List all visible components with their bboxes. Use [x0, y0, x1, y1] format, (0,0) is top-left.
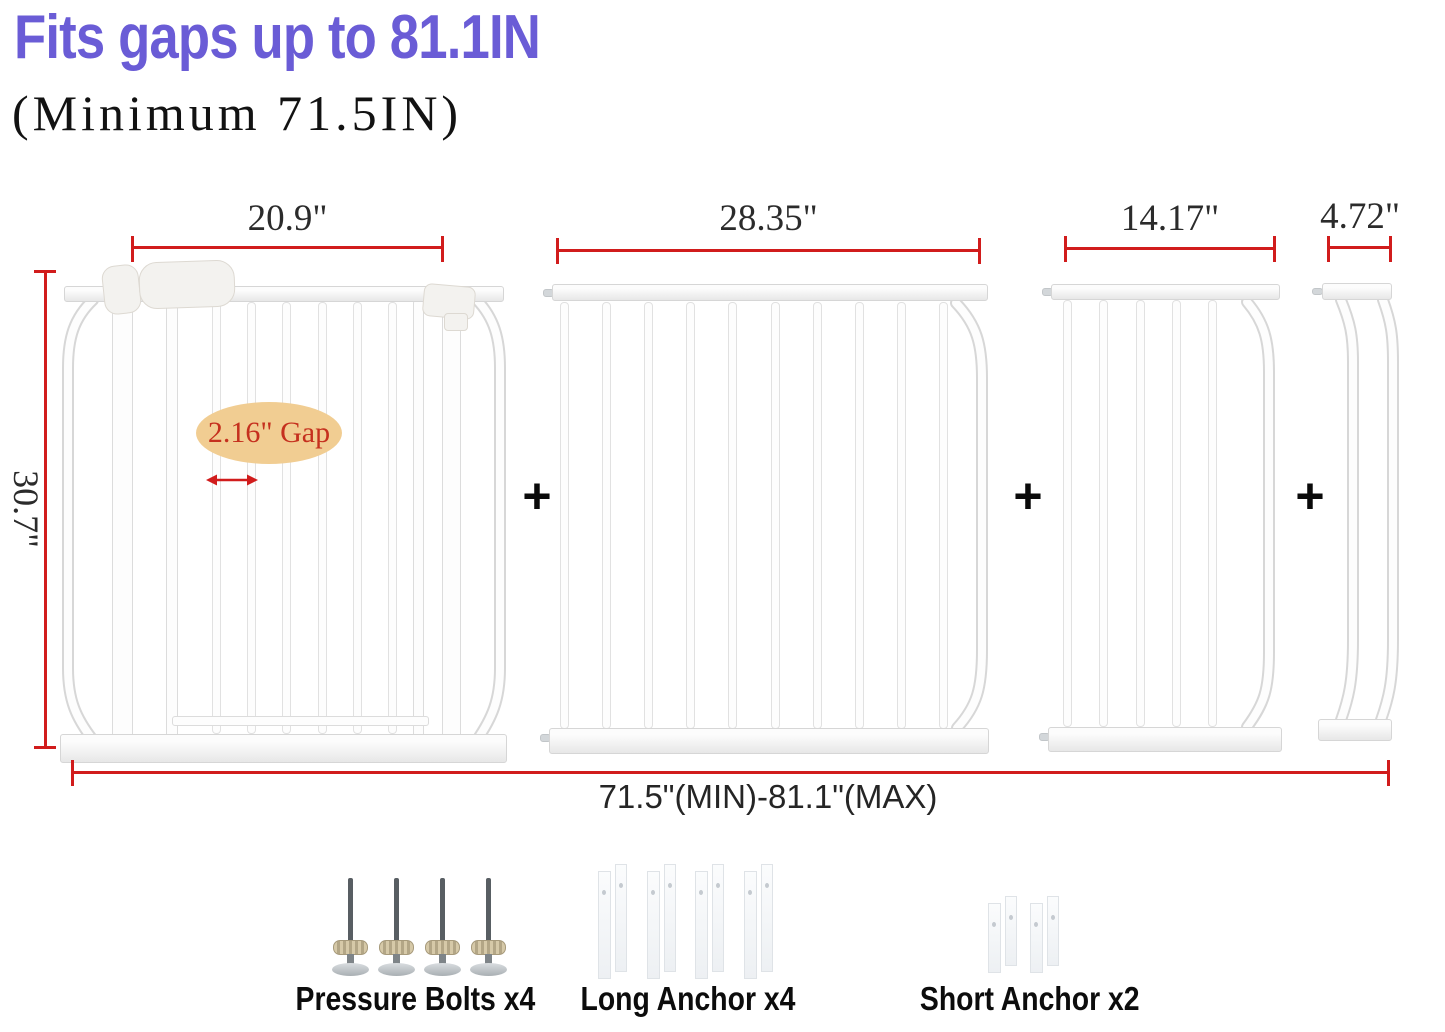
extension-28-top-rail: [552, 284, 988, 301]
gap-arrow-icon: [206, 470, 258, 490]
gate-bar: [282, 302, 291, 734]
plus-icon: +: [509, 468, 565, 524]
bolt-rod: [440, 878, 445, 944]
dim-tick: [1064, 236, 1067, 262]
dim-tick: [1389, 236, 1392, 262]
extension-14-top-rail: [1051, 284, 1280, 300]
gate-bar: [602, 302, 611, 729]
pressure-bolt-icon: [331, 878, 371, 978]
gate-door-left-post: [166, 300, 178, 746]
gate-bottom-rail: [60, 734, 507, 763]
pressure-bolt-icon: [469, 878, 509, 978]
dim-line-ext4-width: [1328, 246, 1391, 249]
gate-bar: [388, 302, 397, 734]
long-anchor-icon: [744, 864, 774, 980]
short-anchor-icon: [988, 896, 1018, 976]
long-anchor-icon: [598, 864, 628, 980]
short-anchors-label-text: Short Anchor x2: [920, 980, 1140, 1018]
page-title: Fits gaps up to 81.1IN: [14, 2, 540, 73]
dim-tick: [34, 746, 56, 749]
extension-4-top-plate: [1322, 283, 1392, 300]
bolt-rod: [348, 878, 353, 944]
dim-line-ext14-width: [1065, 247, 1275, 250]
dim-tick: [1327, 236, 1330, 262]
gate-bar: [771, 302, 780, 729]
dim-tick: [131, 236, 134, 262]
dim-tick: [34, 270, 56, 273]
extension-14-bars: [1063, 300, 1217, 727]
dim-tick: [556, 238, 559, 264]
pressure-bolts-label: Pressure Bolts x4: [255, 980, 575, 1018]
dim-line-total: [72, 771, 1389, 774]
gate-latch-knob: [101, 263, 143, 316]
bolt-rod: [486, 878, 491, 944]
bolt-rod: [394, 878, 399, 944]
gate-door-right-post: [413, 300, 424, 746]
extension-28-bottom-rail: [549, 728, 989, 754]
short-anchors-label: Short Anchor x2: [870, 980, 1190, 1018]
bolt-nut: [471, 940, 506, 955]
gate-bar: [686, 302, 695, 729]
gate-bar: [1063, 300, 1072, 727]
gate-bar: [728, 302, 737, 729]
anchor-plate-front: [744, 871, 757, 979]
extension-4-bottom-plate: [1318, 719, 1392, 741]
anchor-plate-front: [988, 903, 1001, 973]
long-anchor-icon: [647, 864, 677, 980]
bolt-nut: [425, 940, 460, 955]
gate-latch-handle: [138, 259, 236, 309]
dim-tick: [1387, 760, 1390, 786]
gate-door-bottom-bar: [172, 716, 429, 726]
dim-label-ext14-width: 14.17": [1065, 197, 1275, 240]
dim-tick: [71, 760, 74, 786]
pressure-bolts-icons: [331, 878, 509, 978]
bolt-foot: [332, 963, 369, 976]
extension-28-bars: [560, 302, 948, 729]
anchor-plate-front: [647, 871, 660, 979]
long-anchors-label: Long Anchor x4: [528, 980, 848, 1018]
gate-bar: [1208, 300, 1217, 727]
gap-badge: 2.16" Gap: [196, 402, 342, 464]
gate-bar: [1172, 300, 1181, 727]
bolt-foot: [378, 963, 415, 976]
long-anchor-icon: [695, 864, 725, 980]
anchor-plate-front: [695, 871, 708, 979]
gate-bar: [897, 302, 906, 729]
gate-bar: [813, 302, 822, 729]
dim-tick: [1273, 236, 1276, 262]
dim-label-height: 30.7": [5, 449, 47, 569]
anchor-plate-back: [1047, 896, 1059, 966]
gate-bar: [247, 302, 256, 734]
anchor-plate-back: [1005, 896, 1017, 966]
short-anchors-icons: [988, 896, 1060, 976]
gate-right-post: [442, 300, 461, 758]
page-subtitle: (Minimum 71.5IN): [12, 84, 462, 142]
anchor-plate-front: [598, 871, 611, 979]
dim-line-gate-width: [132, 246, 443, 249]
plus-icon: +: [1282, 468, 1338, 524]
anchor-plate-back: [712, 864, 724, 972]
bolt-nut: [333, 940, 368, 955]
anchor-plate-front: [1030, 903, 1043, 973]
pressure-bolt-icon: [377, 878, 417, 978]
anchor-plate-back: [615, 864, 627, 972]
gate-left-post: [112, 266, 133, 761]
gate-bars: [212, 302, 397, 734]
dim-label-ext4-width: 4.72": [1314, 195, 1406, 238]
long-anchors-icons: [598, 864, 774, 980]
bolt-foot: [424, 963, 461, 976]
gate-hinge-lower: [444, 313, 468, 331]
bolt-foot: [470, 963, 507, 976]
dim-line-ext28-width: [557, 249, 980, 252]
gate-bar: [644, 302, 653, 729]
plus-icon: +: [1000, 468, 1056, 524]
gate-bar: [1099, 300, 1108, 727]
dim-label-ext28-width: 28.35": [557, 197, 980, 240]
extension-14-bottom-rail: [1048, 727, 1282, 752]
gate-bar: [855, 302, 864, 729]
bolt-nut: [379, 940, 414, 955]
dim-label-total-range: 71.5"(MIN)-81.1"(MAX): [493, 778, 1043, 816]
gate-bar: [353, 302, 362, 734]
dim-tick: [978, 238, 981, 264]
long-anchors-label-text: Long Anchor x4: [581, 980, 796, 1018]
anchor-plate-back: [664, 864, 676, 972]
gate-bar: [1136, 300, 1145, 727]
gate-bar: [212, 302, 221, 734]
product-diagram: Fits gaps up to 81.1IN (Minimum 71.5IN): [0, 0, 1445, 1032]
pressure-bolt-icon: [423, 878, 463, 978]
dim-tick: [441, 236, 444, 262]
anchor-plate-back: [761, 864, 773, 972]
gate-bar: [939, 302, 948, 729]
pressure-bolts-label-text: Pressure Bolts x4: [295, 980, 535, 1018]
gate-bar: [318, 302, 327, 734]
dim-label-gate-width: 20.9": [132, 197, 443, 240]
short-anchor-icon: [1030, 896, 1060, 976]
